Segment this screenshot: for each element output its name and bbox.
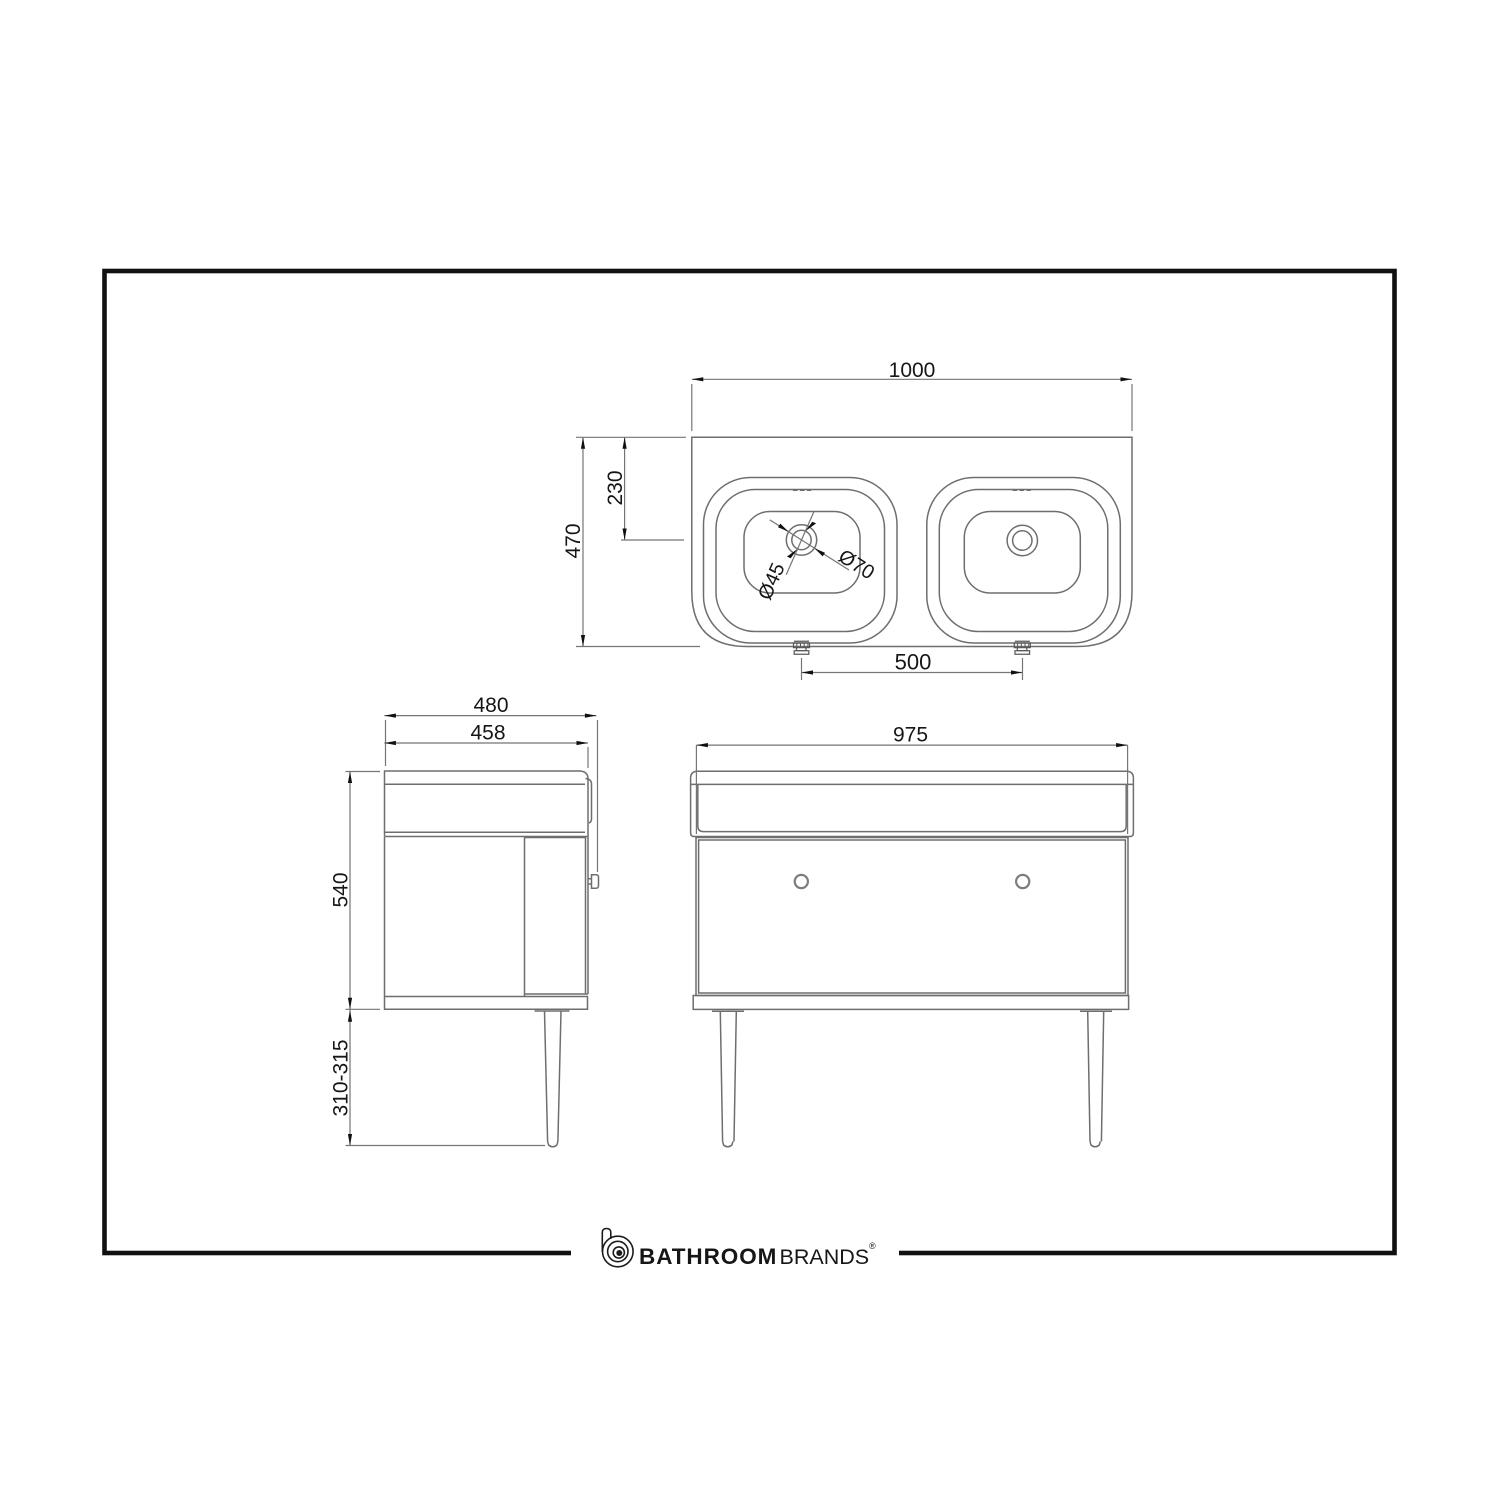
svg-text:480: 480 xyxy=(473,694,508,717)
svg-text:540: 540 xyxy=(330,872,353,907)
svg-text:®: ® xyxy=(869,1241,876,1251)
svg-text:458: 458 xyxy=(470,722,505,745)
svg-text:230: 230 xyxy=(604,470,627,505)
svg-text:BATHROOM: BATHROOM xyxy=(639,1244,777,1269)
svg-text:975: 975 xyxy=(893,724,928,747)
svg-text:500: 500 xyxy=(895,650,932,675)
svg-text:BRANDS: BRANDS xyxy=(780,1245,870,1269)
svg-text:310-315: 310-315 xyxy=(330,1039,353,1116)
svg-text:470: 470 xyxy=(562,523,585,558)
svg-text:1000: 1000 xyxy=(889,359,936,382)
